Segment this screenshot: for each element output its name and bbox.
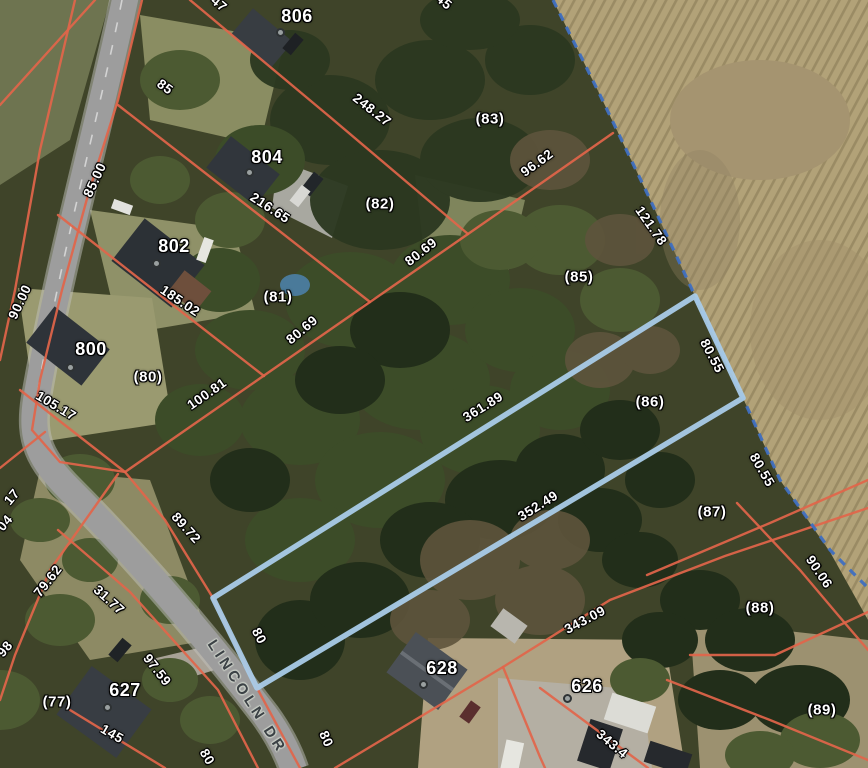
blue-tarp bbox=[280, 274, 310, 296]
gis-map-viewport[interactable]: 806804802800627628626(83)(82)(81)(80)(85… bbox=[0, 0, 868, 768]
aerial-basemap bbox=[0, 0, 868, 768]
